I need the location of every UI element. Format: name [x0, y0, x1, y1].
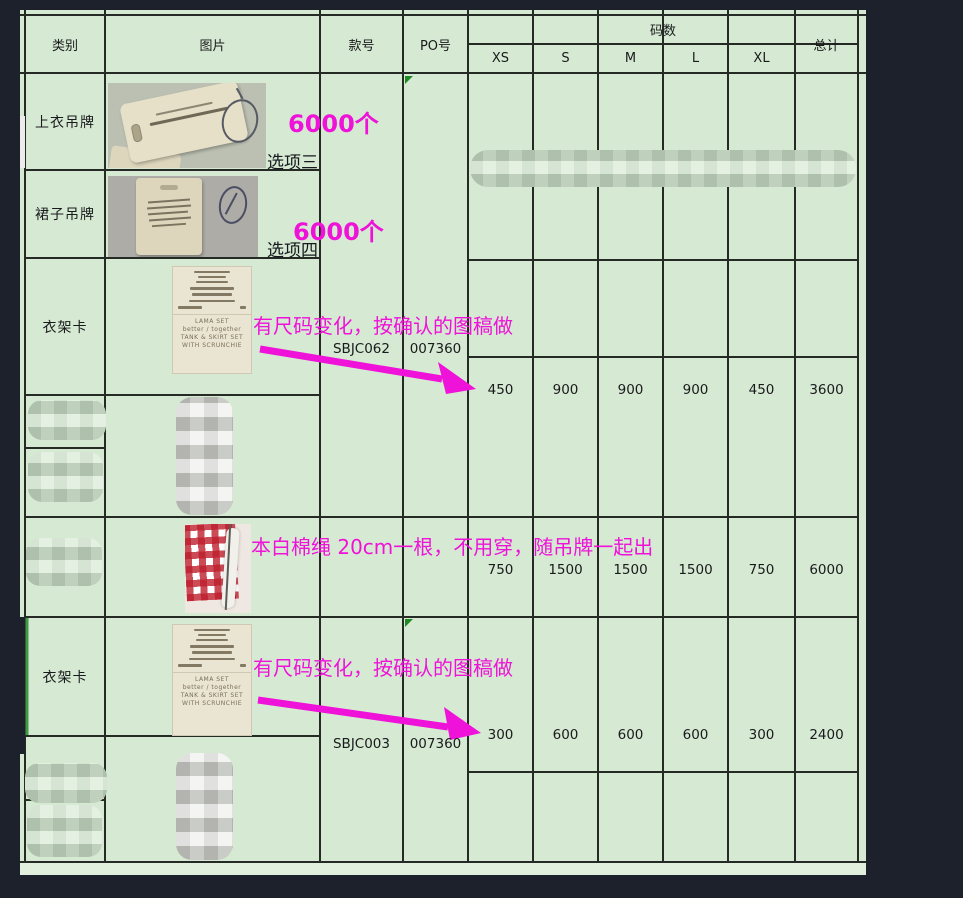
qty-value: 450: [749, 382, 775, 398]
header-category-label: 类别: [52, 35, 78, 54]
cell-qty-1-l[interactable]: 900: [663, 376, 728, 404]
cell-hanger-card-2-category[interactable]: 衣架卡: [25, 617, 105, 736]
skirt-tag-hole: [160, 185, 178, 190]
cell-total-3[interactable]: 2400: [795, 721, 858, 749]
qty-value: 600: [618, 727, 644, 743]
header-size-s[interactable]: S: [533, 44, 598, 73]
qty-value: 300: [488, 727, 514, 743]
header-style-no-label: 款号: [348, 35, 374, 54]
cell-qty-2-s[interactable]: 1500: [533, 556, 598, 584]
redacted-image: [176, 397, 233, 515]
qty-value: 750: [749, 562, 775, 578]
cell-qty-1-m[interactable]: 900: [598, 376, 663, 404]
header-po-no-label: PO号: [420, 35, 451, 54]
redacted-label: [26, 538, 102, 586]
cell-corner-marker: [405, 619, 413, 627]
tag-text-line: [152, 223, 186, 227]
header-size-m-label: M: [625, 51, 636, 66]
header-size-l-label: L: [692, 51, 699, 66]
header-size-l[interactable]: L: [663, 44, 728, 73]
header-size-m[interactable]: M: [598, 44, 663, 73]
header-size-xs[interactable]: XS: [468, 44, 533, 73]
po-no-2-value: 007360: [410, 736, 462, 752]
tag-hole: [130, 123, 143, 142]
qty-value: 450: [488, 382, 514, 398]
cell-skirt-tag-category[interactable]: 裙子吊牌: [25, 170, 105, 258]
total-value: 6000: [809, 562, 843, 578]
skirt-tag-option-label: 选项四: [240, 236, 318, 261]
card-line: WITH SCRUNCHIE: [173, 700, 251, 708]
cell-corner-marker: [405, 76, 413, 84]
redacted-image: [176, 753, 233, 860]
cell-qty-1-s[interactable]: 900: [533, 376, 598, 404]
skirt-tag-category-label: 裙子吊牌: [35, 204, 95, 224]
card-line: WITH SCRUNCHIE: [173, 342, 251, 350]
cell-style-no-1[interactable]: SBJC062: [320, 338, 403, 360]
header-size-xl[interactable]: XL: [728, 44, 795, 73]
cell-style-no-2[interactable]: SBJC003: [320, 733, 403, 755]
header-image-label: 图片: [199, 35, 225, 54]
qty-value: 1500: [548, 562, 582, 578]
plaid-rope-photo[interactable]: [185, 524, 251, 613]
po-no-1-value: 007360: [410, 341, 462, 357]
size-change-note-2[interactable]: 有尺码变化，按确认的图稿做: [253, 652, 513, 681]
card-line: TANK & SKIRT SET: [173, 692, 251, 700]
qty-value: 600: [683, 727, 709, 743]
cell-qty-2-xs[interactable]: 750: [468, 556, 533, 584]
card-line: LAMA SET: [173, 676, 251, 684]
qty-value: 1500: [613, 562, 647, 578]
redacted-label: [28, 400, 106, 440]
card-line: better / together: [173, 326, 251, 334]
header-size-s-label: S: [561, 51, 569, 66]
top-tag-option-label: 选项三: [240, 148, 318, 173]
header-category[interactable]: 类别: [25, 15, 105, 73]
skirt-tag-photo[interactable]: [108, 176, 258, 257]
header-size-xs-label: XS: [492, 51, 509, 66]
qty-value: 900: [683, 382, 709, 398]
hanger-card-1-category-label: 衣架卡: [43, 317, 88, 337]
background-patch: [17, 617, 25, 754]
header-po-no[interactable]: PO号: [403, 15, 468, 73]
cell-qty-3-xl[interactable]: 300: [728, 721, 795, 749]
cell-qty-2-l[interactable]: 1500: [663, 556, 728, 584]
hanger-card-2-category-label: 衣架卡: [43, 667, 88, 687]
tag-text-line: [148, 211, 188, 216]
total-value: 3600: [809, 382, 843, 398]
total-value: 2400: [809, 727, 843, 743]
cell-qty-1-xs[interactable]: 450: [468, 376, 533, 404]
size-change-note-1[interactable]: 有尺码变化，按确认的图稿做: [253, 310, 513, 339]
skirt-tag-front: [136, 178, 202, 255]
cell-total-1[interactable]: 3600: [795, 376, 858, 404]
redacted-label: [27, 805, 102, 857]
cell-total-2[interactable]: 6000: [795, 556, 858, 584]
redacted-label: [25, 763, 107, 803]
hanger-card-1-image[interactable]: LAMA SET better / together TANK & SKIRT …: [172, 266, 252, 374]
style-no-1-value: SBJC062: [333, 341, 390, 357]
cell-qty-3-xs[interactable]: 300: [468, 721, 533, 749]
qty-value: 750: [488, 562, 514, 578]
header-image[interactable]: 图片: [105, 15, 320, 73]
cell-hanger-card-1-category[interactable]: 衣架卡: [25, 258, 105, 395]
style-no-2-value: SBJC003: [333, 736, 390, 752]
sheet-partial-bottom-row: [20, 862, 866, 875]
top-tag-qty-note[interactable]: 6000个: [288, 104, 379, 139]
qty-value: 900: [553, 382, 579, 398]
top-tag-category-label: 上衣吊牌: [35, 112, 95, 132]
redacted-sizes-values: [470, 150, 856, 187]
cell-qty-2-m[interactable]: 1500: [598, 556, 663, 584]
cell-qty-2-xl[interactable]: 750: [728, 556, 795, 584]
redacted-label: [28, 452, 103, 502]
cell-qty-3-l[interactable]: 600: [663, 721, 728, 749]
qty-value: 900: [618, 382, 644, 398]
hanger-card-2-image[interactable]: LAMA SET better / together TANK & SKIRT …: [172, 624, 252, 736]
header-total[interactable]: 总计: [795, 15, 858, 73]
qty-value: 1500: [678, 562, 712, 578]
qty-value: 600: [553, 727, 579, 743]
cell-top-tag-category[interactable]: 上衣吊牌: [25, 73, 105, 170]
card-line: TANK & SKIRT SET: [173, 334, 251, 342]
tag-stamp-line: [149, 107, 228, 127]
cell-qty-3-m[interactable]: 600: [598, 721, 663, 749]
tag-text-line: [147, 204, 191, 209]
tag-text-line: [149, 217, 191, 222]
cell-qty-3-s[interactable]: 600: [533, 721, 598, 749]
header-style-no[interactable]: 款号: [320, 15, 403, 73]
header-sizes-group-label: 码数: [650, 20, 676, 39]
handwritten-circle-mark: [216, 184, 250, 226]
spreadsheet-screenshot: 类别 图片 款号 PO号 码数 XS S M L XL 总计 上衣吊牌 裙子吊牌…: [0, 0, 963, 898]
cell-po-no-2[interactable]: 007360: [403, 733, 468, 755]
tag-text-line: [148, 199, 190, 204]
cell-po-no-1[interactable]: 007360: [403, 338, 468, 360]
header-total-label: 总计: [813, 35, 839, 54]
left-sliver-cell: [20, 116, 25, 168]
handwritten-stroke: [225, 193, 238, 215]
card-line: better / together: [173, 684, 251, 692]
cell-qty-1-xl[interactable]: 450: [728, 376, 795, 404]
card-line: LAMA SET: [173, 318, 251, 326]
qty-value: 300: [749, 727, 775, 743]
header-size-xl-label: XL: [753, 51, 769, 66]
